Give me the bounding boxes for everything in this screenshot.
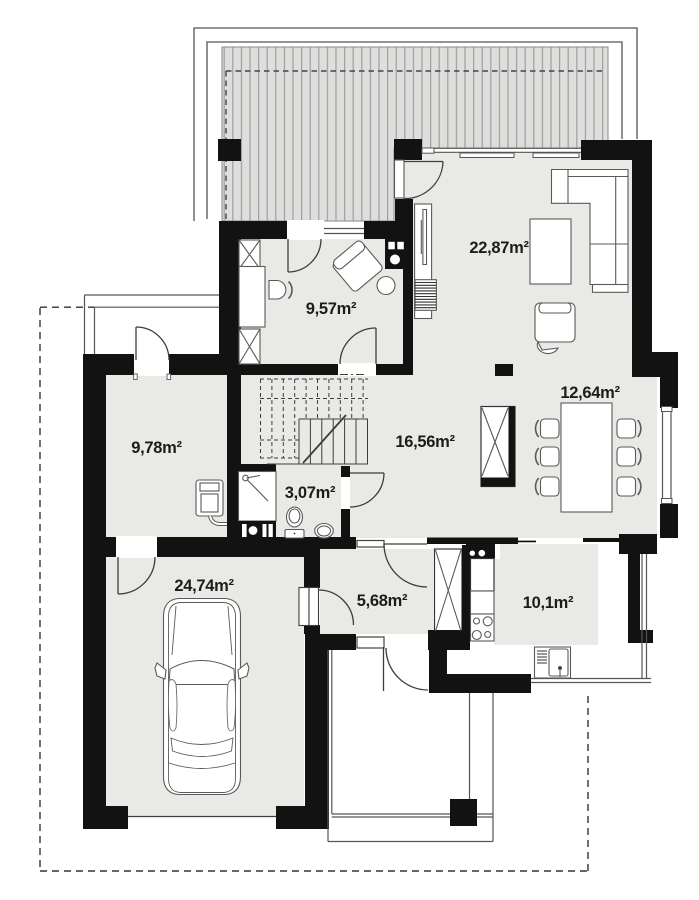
svg-text:9,57m²: 9,57m²	[306, 300, 357, 318]
svg-text:12,64m²: 12,64m²	[560, 384, 620, 402]
svg-text:16,56m²: 16,56m²	[395, 433, 455, 451]
svg-text:9,78m²: 9,78m²	[131, 439, 182, 457]
svg-text:24,74m²: 24,74m²	[174, 577, 234, 595]
svg-text:22,87m²: 22,87m²	[469, 239, 529, 257]
svg-text:5,68m²: 5,68m²	[357, 592, 408, 610]
svg-text:3,07m²: 3,07m²	[285, 484, 336, 502]
svg-text:10,1m²: 10,1m²	[523, 594, 574, 612]
